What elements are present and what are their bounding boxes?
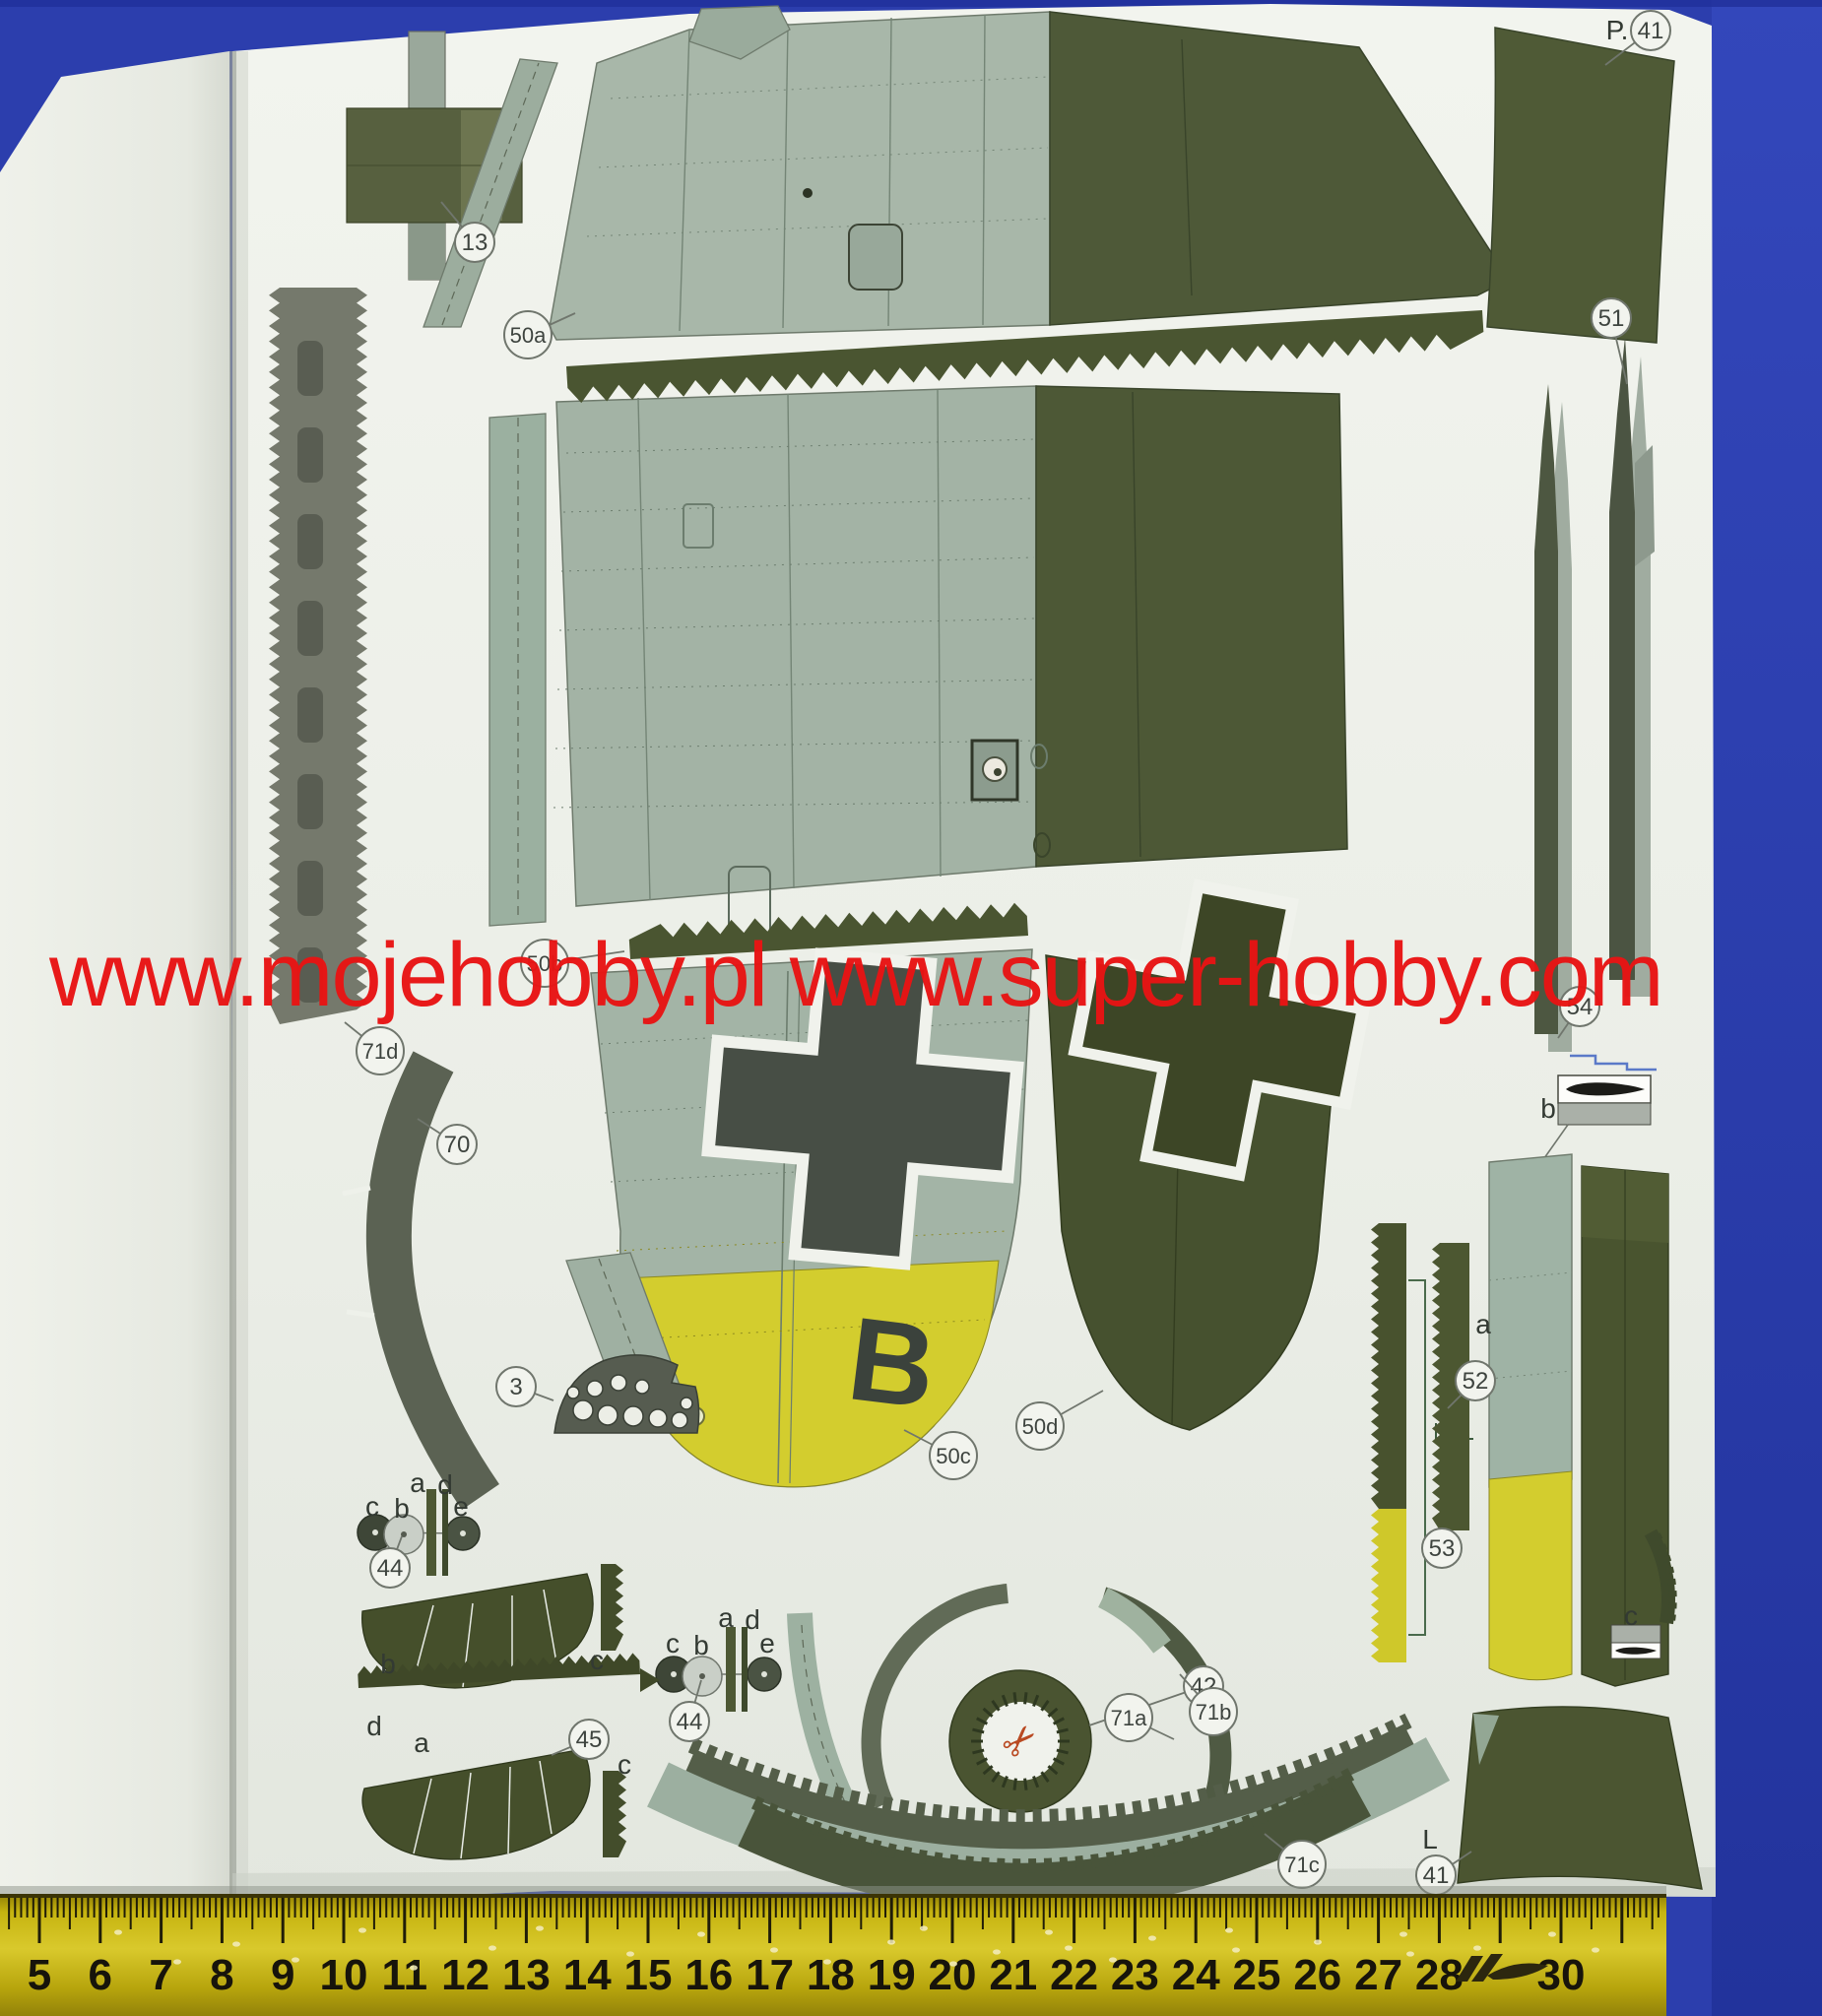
ruler-number-9: 9 [271, 1951, 294, 1999]
letter-label-d: d [745, 1604, 760, 1635]
part-label-text-50d: 50d [1022, 1414, 1059, 1439]
ruler-number-19: 19 [868, 1951, 916, 1999]
letter-label-c: c [365, 1491, 379, 1522]
serrated-strip-hole [297, 774, 323, 829]
blue-right-band [1712, 0, 1822, 2016]
ruler-speckle [1109, 1957, 1117, 1962]
part-label-text-52: 52 [1463, 1368, 1489, 1395]
part-41-top-piece [1487, 28, 1674, 343]
ruler-number-15: 15 [624, 1951, 673, 1999]
ruler-speckle [1548, 1931, 1556, 1936]
ruler-speckle [1232, 1947, 1240, 1952]
ruler-speckle [488, 1945, 496, 1950]
ring-tooth [1014, 1779, 1015, 1790]
ruler-speckle [173, 1959, 181, 1964]
watermark-text: www.mojehobby.pl www.super-hobby.com [49, 924, 1662, 1027]
blue-top-edge [0, 0, 1822, 7]
letter-label-L: L [1422, 1824, 1438, 1854]
letter-label-b: b [1540, 1093, 1556, 1124]
part-label-text-41: 41 [1638, 18, 1664, 44]
part-label-text-45: 45 [576, 1726, 603, 1753]
serrated-strip-hole [297, 601, 323, 656]
ruler-number-8: 8 [210, 1951, 233, 1999]
ruler-shadow [0, 1886, 1666, 1894]
letter-label-P.: P. [1606, 15, 1629, 45]
ruler-speckle [887, 1939, 895, 1944]
part-label-text-71b: 71b [1196, 1700, 1232, 1724]
letter-label-a: a [410, 1467, 425, 1498]
ruler-number-11: 11 [382, 1951, 428, 1999]
serrated-strip-hole [297, 514, 323, 569]
ruler-speckle [232, 1941, 240, 1946]
letter-label-c: c [590, 1645, 604, 1675]
ruler-number-10: 10 [320, 1951, 368, 1999]
letter-label-b: b [693, 1630, 709, 1660]
ruler-number-30: 30 [1537, 1951, 1586, 1999]
fuselage-code-letter: B [842, 1292, 943, 1434]
part-label-text-70: 70 [444, 1132, 471, 1158]
part-label-text-41: 41 [1423, 1862, 1450, 1889]
ruler-speckle [697, 1931, 705, 1936]
ruler-speckle [949, 1961, 957, 1966]
ruler-number-7: 7 [149, 1951, 172, 1999]
part-42-ring: ✂ [949, 1670, 1091, 1812]
letter-label-a: a [1475, 1309, 1491, 1339]
letter-label-b: b [394, 1493, 410, 1524]
letter-label-a: a [414, 1727, 429, 1758]
ruler-number-28: 28 [1415, 1951, 1464, 1999]
part-label-text-71a: 71a [1111, 1706, 1147, 1730]
part-label-text-71d: 71d [362, 1039, 399, 1064]
ruler-speckle [358, 1927, 366, 1932]
ruler-top-edge [0, 1894, 1666, 1898]
ruler-number-13: 13 [502, 1951, 551, 1999]
part-label-text-53: 53 [1429, 1535, 1456, 1562]
ruler-speckle [292, 1957, 299, 1962]
ruler-speckle [1406, 1951, 1414, 1956]
ruler-number-16: 16 [684, 1951, 733, 1999]
ruler-speckle [1592, 1947, 1599, 1952]
ruler-number-14: 14 [563, 1951, 612, 1999]
ruler-number-24: 24 [1172, 1951, 1220, 1999]
letter-label-c: c [618, 1749, 631, 1780]
letter-label-d: d [437, 1469, 453, 1500]
ruler-speckle [993, 1949, 1001, 1954]
part-50a-canopy-top [550, 12, 1509, 340]
ruler-speckle [536, 1925, 544, 1930]
ruler-number-21: 21 [989, 1951, 1037, 1999]
ring-tooth [1025, 1692, 1026, 1704]
serrated-strip-hole [297, 427, 323, 483]
part-label-text-51: 51 [1598, 305, 1625, 332]
ruler-speckle [410, 1965, 418, 1970]
part-label-text-44: 44 [677, 1709, 703, 1735]
ruler-speckle [823, 1959, 831, 1964]
ruler-number-12: 12 [441, 1951, 489, 1999]
ruler-speckle [1314, 1939, 1322, 1944]
ruler-speckle [626, 1951, 634, 1956]
ruler-speckle [1225, 1927, 1233, 1932]
ruler-speckle [1148, 1935, 1156, 1940]
ruler-number-17: 17 [746, 1951, 794, 1999]
ring-tooth [1014, 1692, 1015, 1704]
ruler-speckle [1473, 1945, 1481, 1950]
ruler-speckle [1045, 1929, 1053, 1934]
photo-of-paper-model-sheet: ✂ [0, 0, 1822, 2016]
yellow-ruler: 5678910111213141516171819202122232425262… [0, 1886, 1666, 2016]
serrated-strip-hole [297, 687, 323, 743]
ruler-speckle [1399, 1931, 1407, 1936]
ruler-number-27: 27 [1354, 1951, 1402, 1999]
part-label-text-44: 44 [377, 1555, 404, 1582]
part-main-deck [553, 386, 1347, 936]
ruler-number-23: 23 [1111, 1951, 1159, 1999]
ruler-number-20: 20 [929, 1951, 977, 1999]
letter-label-b: b [380, 1649, 396, 1679]
part-label-text-50c: 50c [936, 1444, 970, 1468]
ruler-number-18: 18 [807, 1951, 855, 1999]
letter-label-e: e [759, 1628, 775, 1658]
ruler-number-25: 25 [1233, 1951, 1281, 1999]
ruler-number-6: 6 [89, 1951, 112, 1999]
ruler-speckle [114, 1929, 122, 1934]
serrated-strip-hole [297, 341, 323, 396]
ring-tooth [1025, 1779, 1026, 1790]
part-thin-vertical-strip [489, 414, 546, 926]
ruler-speckle [920, 1925, 928, 1930]
part-41-bottom-piece [1458, 1707, 1702, 1889]
ruler-number-26: 26 [1293, 1951, 1341, 1999]
letter-label-a: a [718, 1602, 734, 1633]
letter-label-e: e [453, 1491, 469, 1522]
letter-label-c: c [666, 1628, 680, 1658]
ruler-speckle [1065, 1945, 1073, 1950]
serrated-strip-hole [297, 861, 323, 916]
part-label-text-3: 3 [509, 1374, 522, 1400]
part-label-text-71c: 71c [1284, 1853, 1319, 1877]
letter-label-c: c [1624, 1600, 1638, 1631]
part-label-text-50a: 50a [510, 323, 547, 348]
part-label-text-13: 13 [462, 229, 488, 256]
ruler-speckle [770, 1947, 778, 1952]
ruler-number-22: 22 [1050, 1951, 1098, 1999]
ruler-number-5: 5 [28, 1951, 51, 1999]
letter-label-d: d [366, 1711, 382, 1741]
